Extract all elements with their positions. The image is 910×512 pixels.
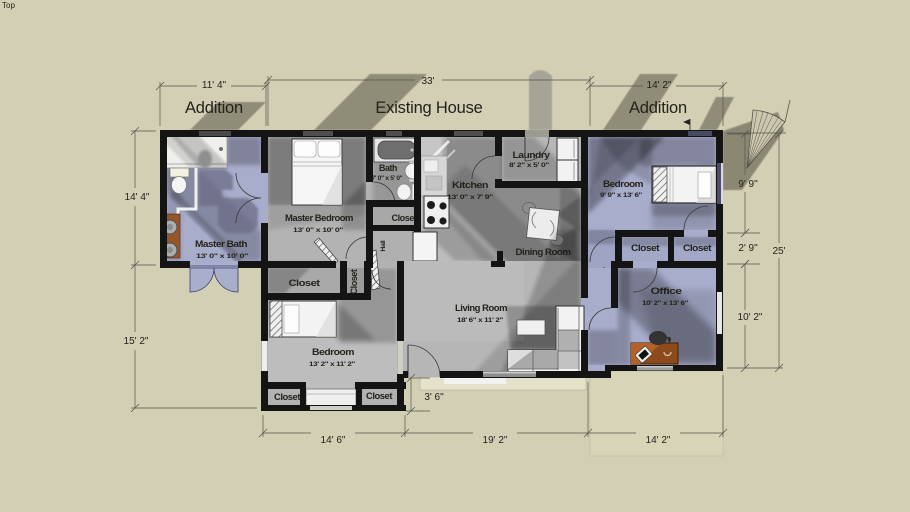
svg-text:Bedroom: Bedroom xyxy=(603,179,643,189)
svg-text:14' 6": 14' 6" xyxy=(321,435,346,446)
svg-text:Existing House: Existing House xyxy=(375,99,482,117)
svg-text:Addition: Addition xyxy=(185,99,243,117)
svg-text:14' 4": 14' 4" xyxy=(125,192,150,203)
svg-text:Closet: Closet xyxy=(392,213,417,223)
svg-text:18' 6" x 11' 2": 18' 6" x 11' 2" xyxy=(457,317,503,324)
svg-text:Hall: Hall xyxy=(380,240,387,251)
svg-text:Living Room: Living Room xyxy=(455,303,507,313)
svg-text:11' 4": 11' 4" xyxy=(202,80,227,91)
svg-text:13' 0" x 10' 0": 13' 0" x 10' 0" xyxy=(196,253,248,260)
svg-text:2' 9": 2' 9" xyxy=(738,243,758,254)
svg-text:7' 0" x 5' 0": 7' 0" x 5' 0" xyxy=(372,175,403,182)
svg-text:Closet: Closet xyxy=(289,278,321,288)
svg-text:Bedroom: Bedroom xyxy=(312,347,355,357)
svg-text:Office: Office xyxy=(651,286,683,296)
svg-text:15' 2": 15' 2" xyxy=(124,336,149,347)
svg-text:3' 6": 3' 6" xyxy=(424,392,444,403)
svg-text:14' 2": 14' 2" xyxy=(646,435,671,446)
svg-text:19' 2": 19' 2" xyxy=(483,435,508,446)
svg-text:Closet: Closet xyxy=(349,269,359,294)
svg-text:Addition: Addition xyxy=(629,99,687,117)
svg-text:Master Bath: Master Bath xyxy=(195,239,247,249)
svg-text:Top: Top xyxy=(2,1,15,10)
svg-text:Master Bedroom: Master Bedroom xyxy=(285,213,353,223)
svg-text:13' 0" x 7' 9": 13' 0" x 7' 9" xyxy=(447,194,493,201)
svg-text:8' 2" x 5' 0": 8' 2" x 5' 0" xyxy=(509,162,549,169)
svg-text:Bath: Bath xyxy=(379,163,397,173)
svg-text:14' 2": 14' 2" xyxy=(647,80,672,91)
svg-text:10' 2": 10' 2" xyxy=(738,312,763,323)
svg-text:13' 2" x 11' 2": 13' 2" x 11' 2" xyxy=(309,361,355,368)
svg-text:9' 9": 9' 9" xyxy=(738,179,758,190)
svg-text:Closet: Closet xyxy=(274,392,300,402)
svg-text:9' 9" x 13' 6": 9' 9" x 13' 6" xyxy=(600,192,642,199)
svg-text:10' 2" x 13' 6": 10' 2" x 13' 6" xyxy=(642,300,688,307)
svg-text:13' 0" x 10' 0": 13' 0" x 10' 0" xyxy=(293,227,343,234)
svg-text:25': 25' xyxy=(772,246,785,257)
svg-text:33': 33' xyxy=(421,76,434,87)
svg-text:Closet: Closet xyxy=(366,391,392,401)
svg-text:Kitchen: Kitchen xyxy=(452,180,488,190)
